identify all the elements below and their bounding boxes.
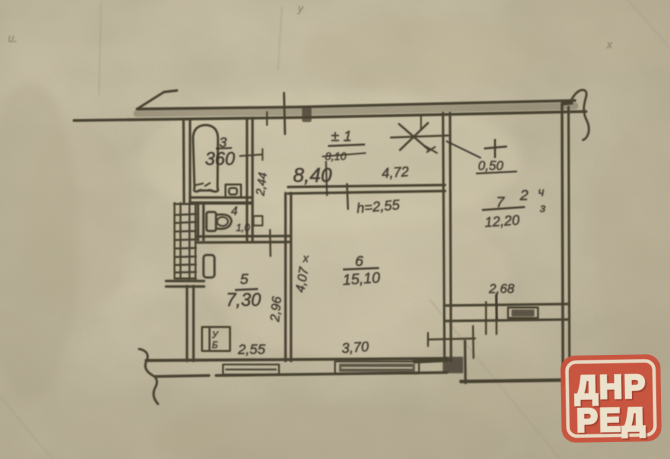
svg-text:2,96: 2,96 (267, 295, 284, 323)
svg-text:2,68: 2,68 (488, 281, 515, 296)
svg-text:2,44: 2,44 (253, 171, 270, 197)
svg-text:ДНР: ДНР (575, 368, 647, 405)
svg-text:± 1: ± 1 (331, 128, 352, 145)
svg-text:0,50: 0,50 (478, 158, 504, 173)
svg-text:5: 5 (240, 271, 249, 288)
svg-text:4: 4 (231, 204, 238, 218)
svg-text:и.: и. (8, 33, 17, 45)
svg-text:РЕД: РЕД (576, 401, 647, 438)
svg-text:15,10: 15,10 (342, 269, 381, 289)
svg-text:12,20: 12,20 (484, 212, 520, 230)
svg-text:з: з (539, 201, 546, 215)
svg-text:360: 360 (205, 149, 235, 169)
svg-text:у: у (297, 4, 304, 15)
svg-text:х: х (606, 40, 613, 51)
svg-text:7,30: 7,30 (226, 290, 261, 310)
svg-text:4,72: 4,72 (381, 163, 410, 181)
svg-text:2: 2 (519, 187, 529, 204)
svg-text:2,55: 2,55 (237, 341, 265, 357)
svg-text:3,70: 3,70 (341, 338, 370, 356)
svg-text:1,0: 1,0 (236, 223, 250, 234)
svg-text:ч: ч (538, 185, 544, 199)
svg-text:6: 6 (355, 253, 364, 270)
svg-text:8,10: 8,10 (325, 151, 347, 163)
svg-text:Б: Б (212, 340, 218, 350)
svg-text:x: x (302, 253, 309, 265)
